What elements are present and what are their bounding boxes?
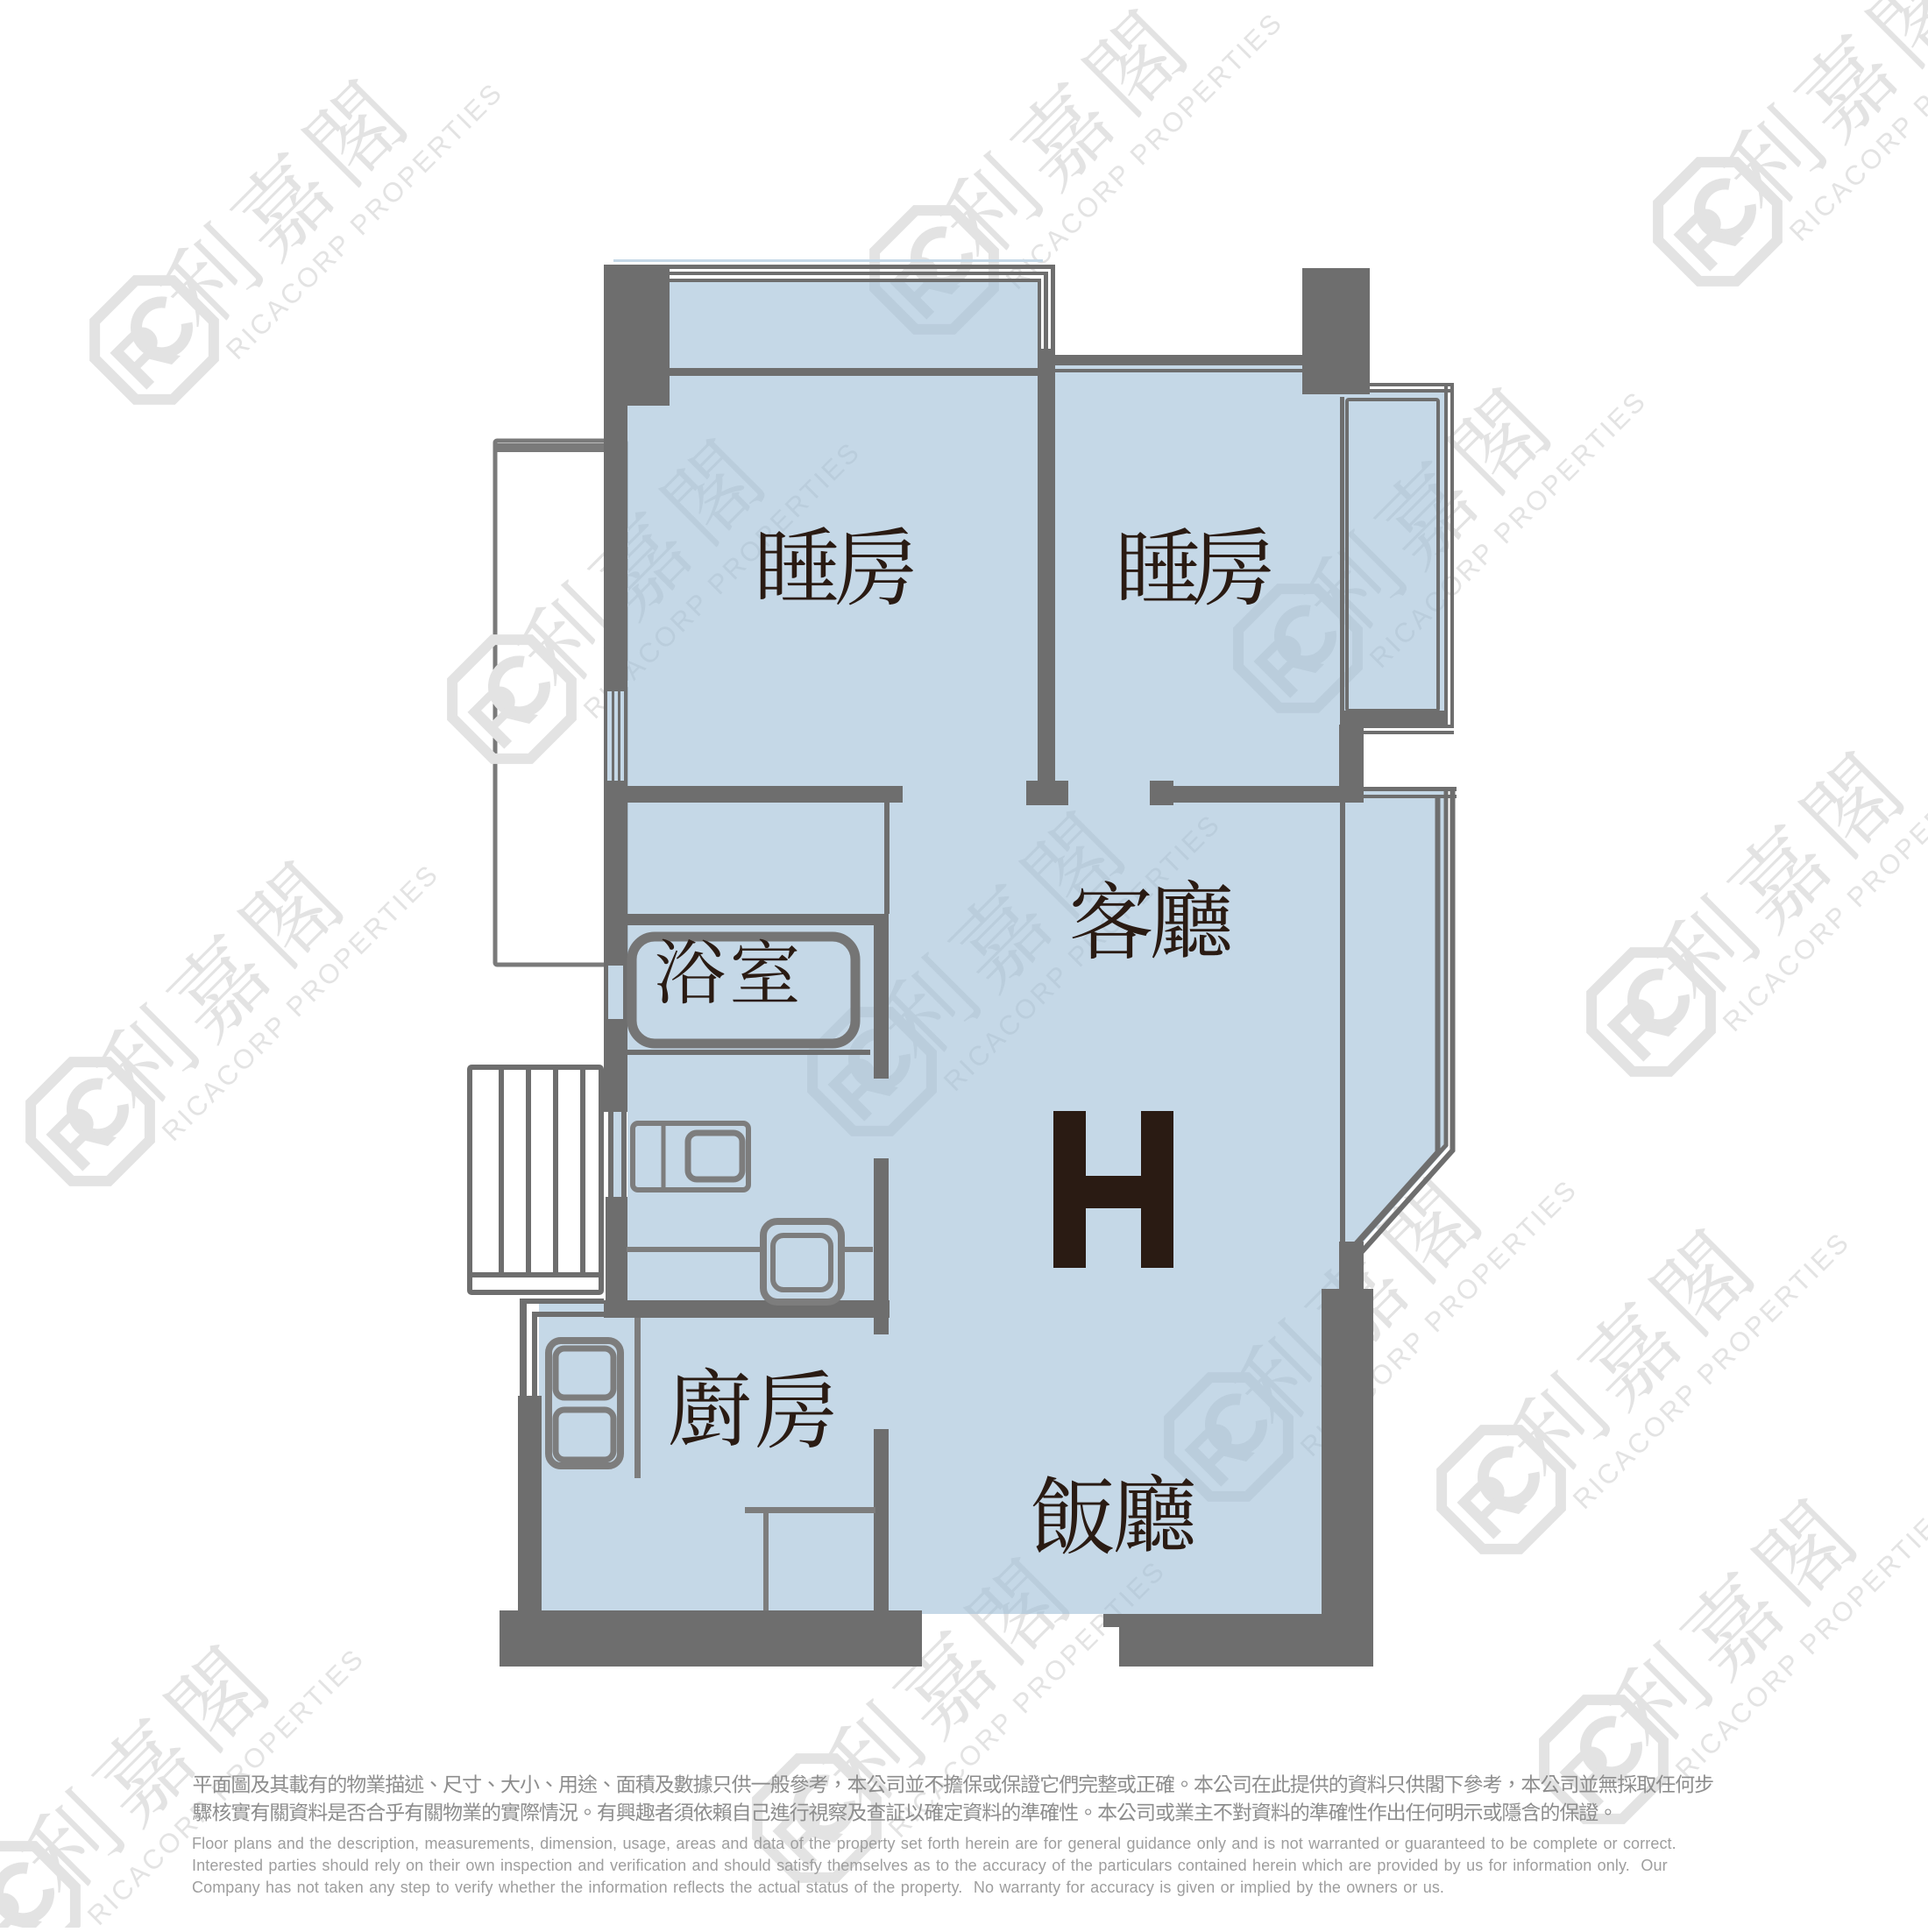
svg-text:Company has not taken any step: Company has not taken any step to verify… xyxy=(192,1879,1444,1896)
svg-text:Interested parties should rely: Interested parties should rely on their … xyxy=(192,1857,1668,1874)
svg-text:Floor plans and the descriptio: Floor plans and the description, measure… xyxy=(192,1835,1676,1852)
